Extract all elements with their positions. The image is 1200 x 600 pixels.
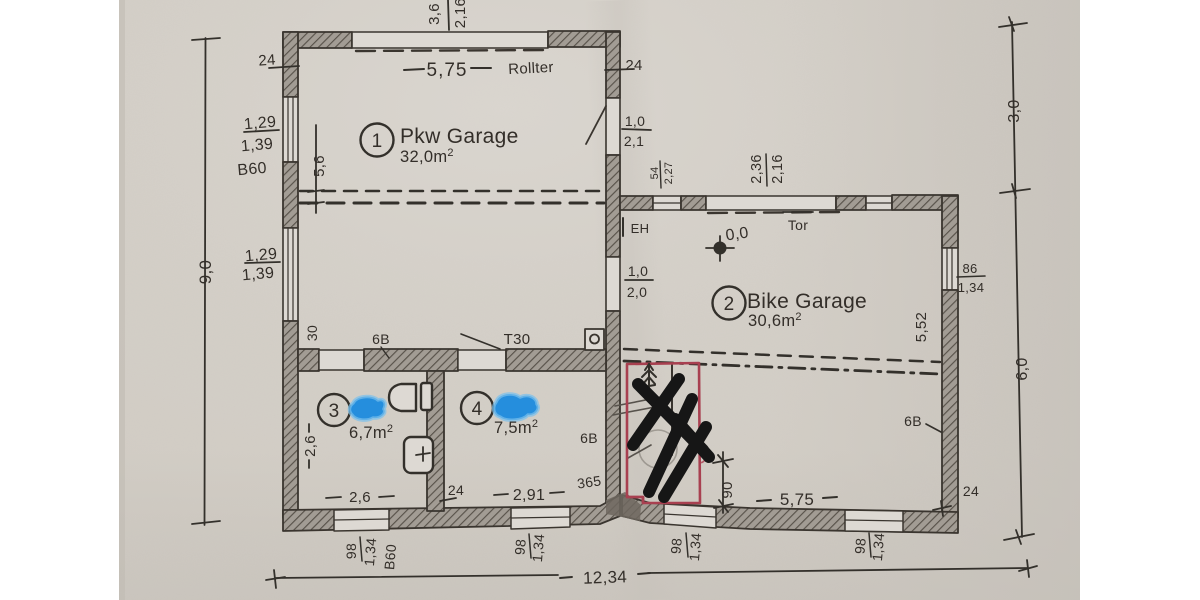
svg-text:24: 24 [963,483,979,499]
svg-text:1,34: 1,34 [686,532,704,562]
svg-text:30: 30 [304,325,320,341]
svg-text:6B: 6B [372,331,390,347]
svg-text:1,0: 1,0 [628,263,648,279]
svg-text:24: 24 [448,482,464,498]
svg-text:3,0: 3,0 [1006,99,1023,122]
svg-text:1,39: 1,39 [240,136,274,156]
svg-text:3,6: 3,6 [426,3,443,25]
svg-text:2,16: 2,16 [770,154,786,183]
svg-text:90: 90 [719,481,736,498]
svg-text:6B: 6B [904,413,922,429]
svg-text:Bike Garage: Bike Garage [747,290,867,313]
svg-text:54: 54 [649,167,661,180]
svg-text:5,6: 5,6 [311,155,328,177]
svg-text:30,6m2: 30,6m2 [748,311,802,330]
svg-text:24: 24 [258,51,276,69]
svg-text:1,34: 1,34 [529,533,547,563]
svg-text:Pkw Garage: Pkw Garage [400,125,519,148]
svg-text:T30: T30 [504,331,531,348]
svg-text:12,34: 12,34 [583,567,628,588]
svg-text:2,6: 2,6 [302,435,319,457]
svg-text:2,36: 2,36 [749,154,765,183]
svg-text:3: 3 [329,401,340,422]
svg-text:2,0: 2,0 [627,284,647,300]
svg-text:Tor: Tor [788,217,808,233]
svg-text:98: 98 [343,543,359,559]
svg-text:2,91: 2,91 [513,487,545,504]
svg-text:98: 98 [851,537,868,555]
svg-text:2: 2 [724,294,735,315]
svg-text:7,5m2: 7,5m2 [494,418,538,437]
svg-text:6,0: 6,0 [1014,357,1031,380]
svg-text:0,0: 0,0 [725,224,750,244]
svg-text:2,27: 2,27 [663,162,675,185]
svg-text:1: 1 [372,131,383,152]
svg-text:6,7m2: 6,7m2 [349,423,393,442]
svg-text:B60: B60 [237,160,268,179]
svg-text:98: 98 [511,538,528,556]
svg-text:2,6: 2,6 [349,489,371,506]
svg-text:24: 24 [625,57,642,74]
svg-text:9,0: 9,0 [196,260,215,285]
svg-text:5,75: 5,75 [427,60,468,81]
svg-text:365: 365 [576,472,602,491]
svg-text:1,34: 1,34 [958,280,985,295]
svg-text:32,0m2: 32,0m2 [400,147,454,166]
svg-text:86: 86 [962,261,977,276]
svg-text:5,52: 5,52 [913,312,930,342]
svg-text:98: 98 [667,537,684,555]
svg-text:2,16: 2,16 [452,0,469,28]
svg-text:5,75: 5,75 [780,490,814,509]
svg-text:1,39: 1,39 [241,265,275,285]
svg-text:6B: 6B [580,430,598,446]
svg-text:1,34: 1,34 [869,532,887,562]
svg-text:2,1: 2,1 [624,133,644,149]
svg-text:1,0: 1,0 [625,113,645,129]
svg-text:Rollter: Rollter [508,59,554,78]
svg-text:EH: EH [631,221,650,236]
svg-text:B60: B60 [381,543,399,570]
svg-text:1,34: 1,34 [361,537,379,567]
svg-text:4: 4 [472,399,483,420]
